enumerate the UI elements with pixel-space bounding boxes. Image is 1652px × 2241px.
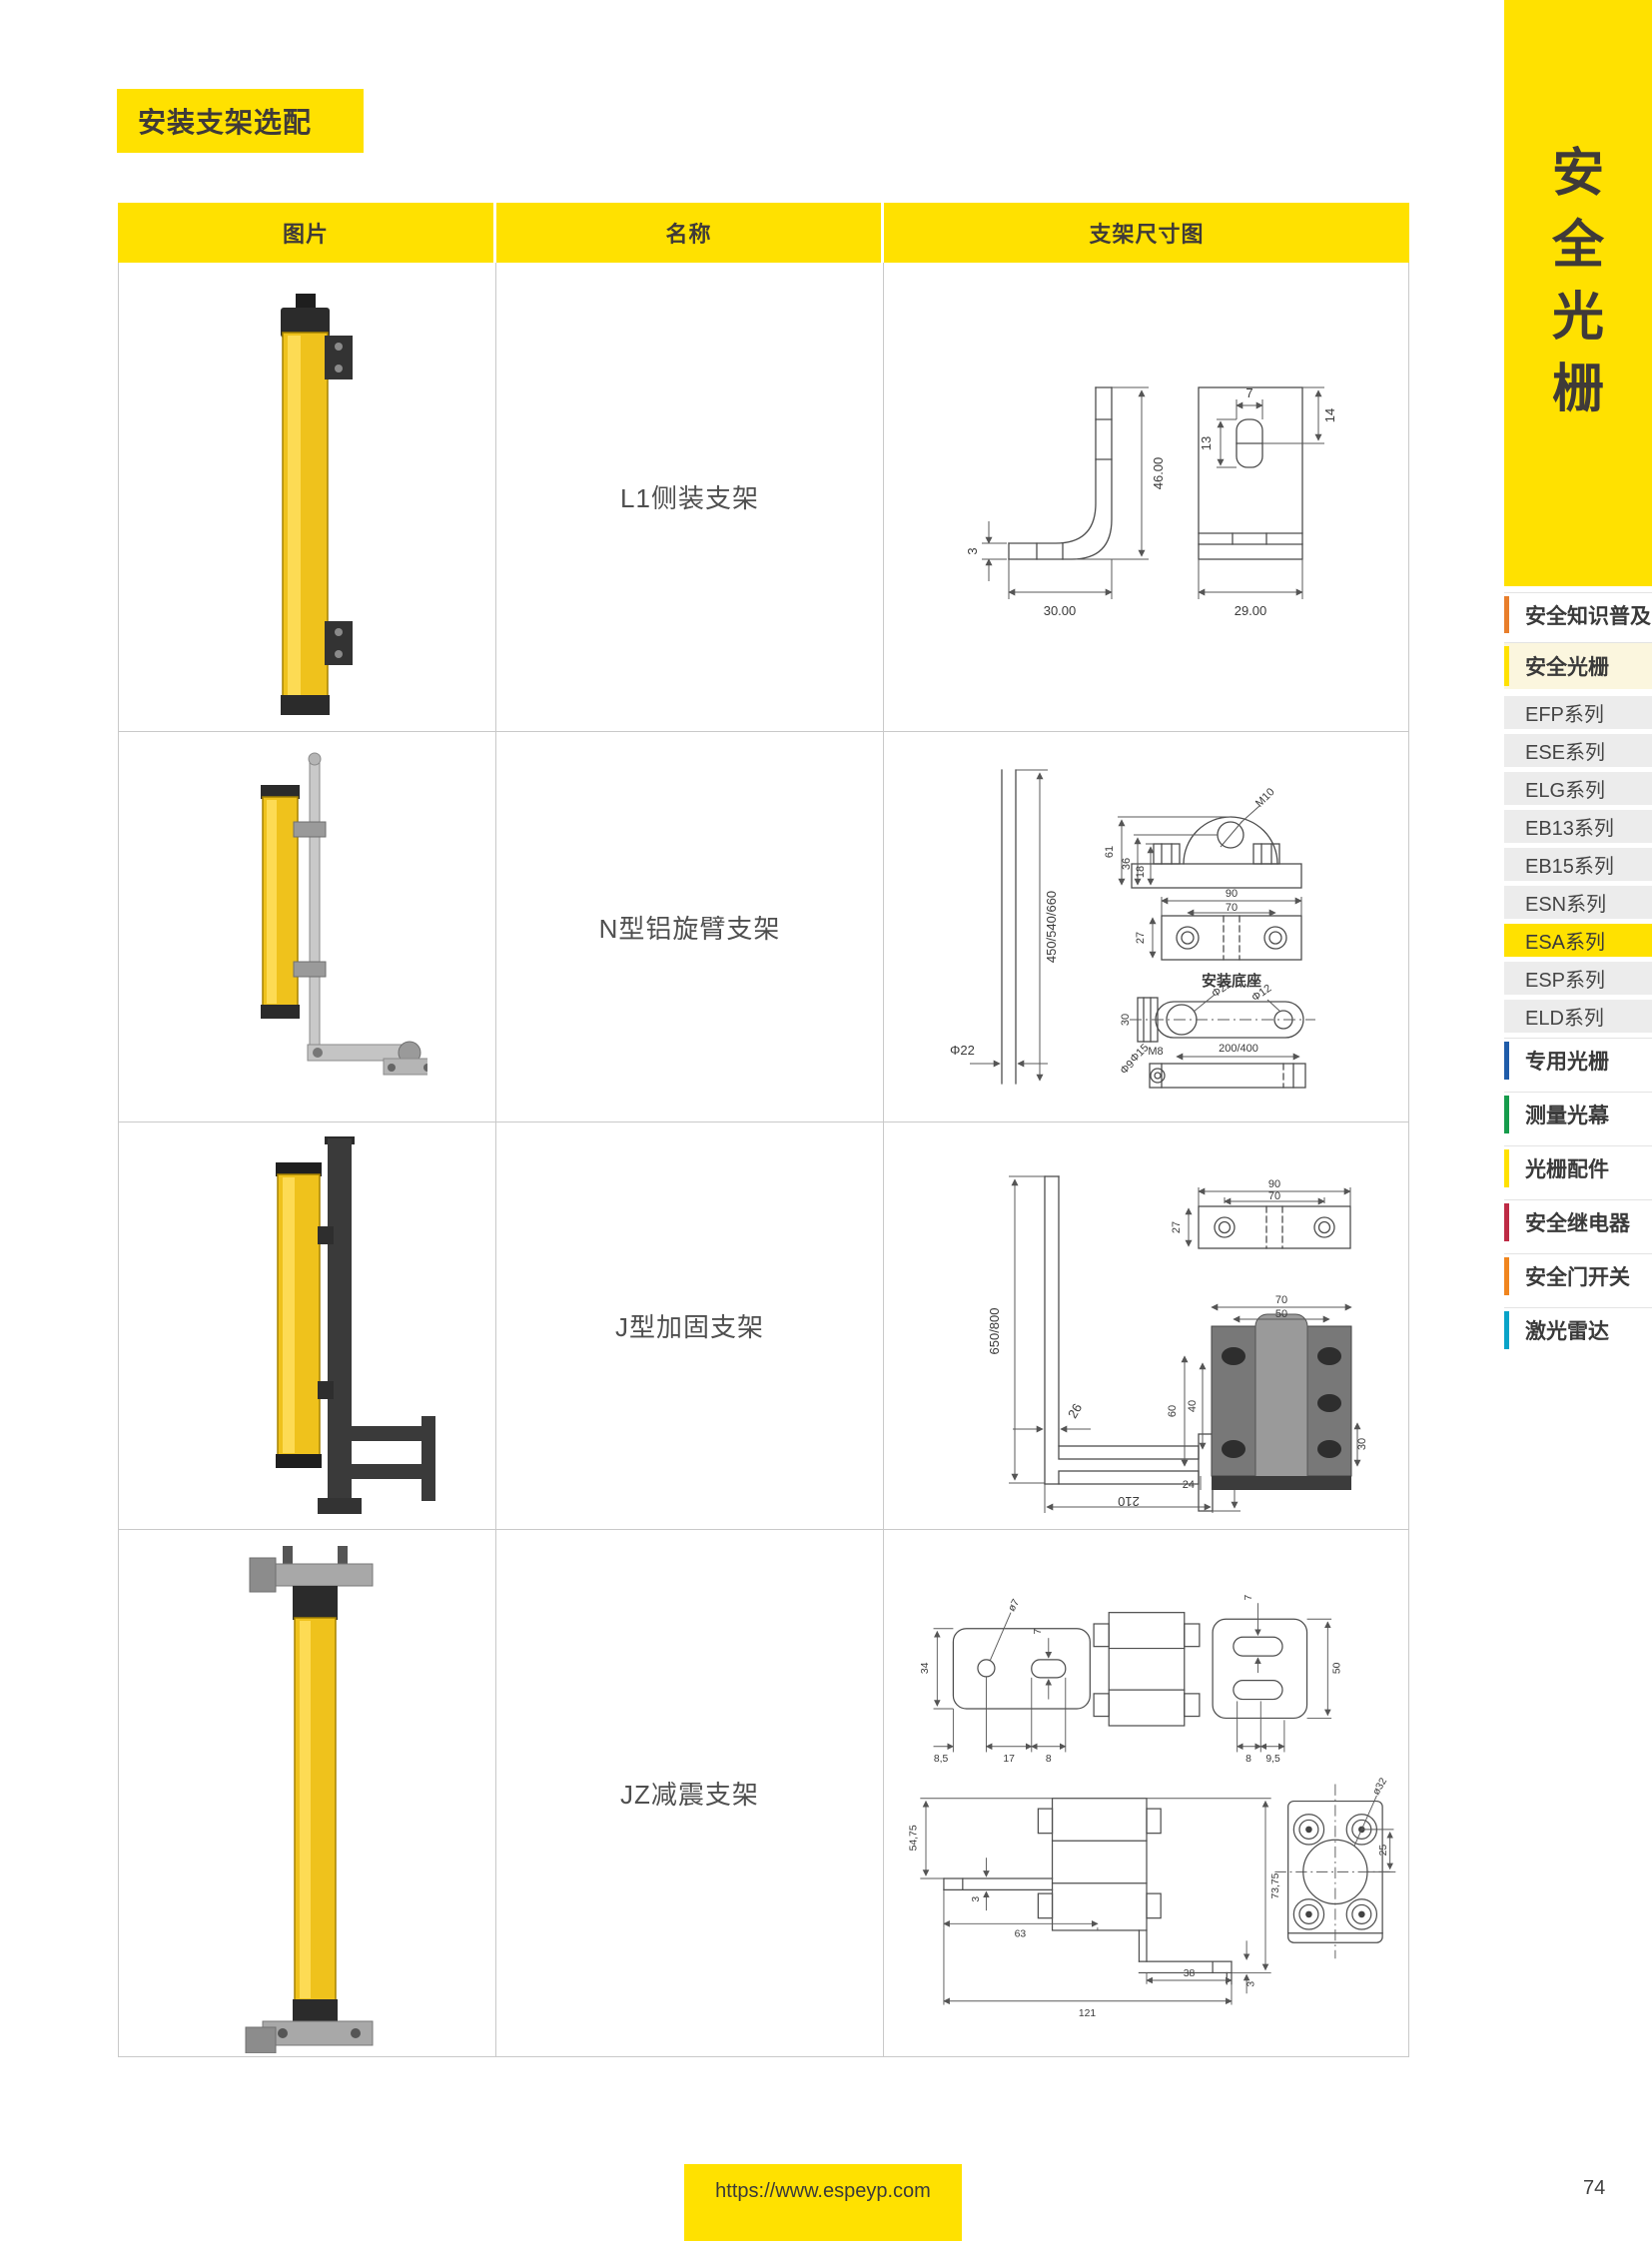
swivel-arm xyxy=(308,1042,427,1075)
sidebar-item-special-light-curtain[interactable]: 专用光栅 xyxy=(1504,1038,1652,1083)
dim-label: 70 xyxy=(1267,1190,1279,1202)
dim-label: 30.00 xyxy=(1043,603,1076,618)
dim-label: 14 xyxy=(1322,407,1337,421)
side-mount-bracket-bottom xyxy=(325,621,353,665)
photo-cell-j-type xyxy=(118,1122,496,1530)
dim-label: 46.00 xyxy=(1151,456,1166,489)
dim-label: 50 xyxy=(1274,1308,1286,1320)
dim-label: 40 xyxy=(1187,1399,1199,1411)
sidebar-item-label: EB15系列 xyxy=(1525,850,1614,879)
page-number: 74 xyxy=(1583,2177,1605,2200)
dim-label: 24 xyxy=(1182,1479,1194,1491)
bracket-table: 图片 名称 支架尺寸图 L1侧装支架 xyxy=(118,203,1409,2057)
dimension-diagram-l1: 46.00 30.00 3 xyxy=(937,348,1356,647)
dim-label: 3 xyxy=(1245,1980,1256,1986)
title-char: 光 xyxy=(1552,292,1604,344)
sidebar-item-safety-relay[interactable]: 安全继电器 xyxy=(1504,1199,1652,1244)
sidebar-item-label: 测量光幕 xyxy=(1525,1100,1609,1129)
sidebar-item-label: ESN系列 xyxy=(1525,888,1606,917)
dim-label: 7 xyxy=(1033,1628,1044,1634)
l1-side-view: 46.00 30.00 3 xyxy=(965,387,1166,618)
dim-label: M10 xyxy=(1253,786,1277,810)
diagram-cell-j-type: 650/800 26 148 210 xyxy=(884,1122,1409,1530)
title-char: 栅 xyxy=(1552,364,1604,415)
dim-label: 30 xyxy=(1356,1437,1366,1449)
sidebar-item-laser-radar[interactable]: 激光雷达 xyxy=(1504,1307,1652,1352)
jz-side-view: 54,75 3 63 38 121 xyxy=(908,1798,1281,2018)
sidebar-item-safety-door-switch[interactable]: 安全门开关 xyxy=(1504,1253,1652,1298)
dim-label: 7 xyxy=(1245,385,1252,400)
sidebar-item-esa-series-active[interactable]: ESA系列 xyxy=(1504,924,1652,957)
sidebar-item-label: 安全光栅 xyxy=(1525,651,1609,681)
sidebar-nav: 安全知识普及 安全光栅 EFP系列 ESE系列 ELG系列 EB13系列 EB1… xyxy=(1504,592,1652,1352)
diagram-cell-l1: 46.00 30.00 3 xyxy=(884,263,1409,732)
sidebar-item-efp-series[interactable]: EFP系列 xyxy=(1504,696,1652,729)
sidebar-item-grating-accessories[interactable]: 光栅配件 xyxy=(1504,1145,1652,1190)
sidebar-item-esn-series[interactable]: ESN系列 xyxy=(1504,886,1652,919)
color-bar xyxy=(1504,596,1509,633)
sidebar-item-label: 安全继电器 xyxy=(1525,1207,1630,1237)
sidebar-item-safety-light-curtain[interactable]: 安全光栅 xyxy=(1504,642,1652,689)
right-sidebar: 安 全 光 栅 安全知识普及 安全光栅 EFP系列 ESE系列 ELG系列 xyxy=(1504,0,1652,2241)
color-bar xyxy=(1504,1257,1509,1295)
dim-label: 27 xyxy=(1171,1220,1183,1232)
dim-label: 27 xyxy=(1135,932,1147,944)
column-header-image: 图片 xyxy=(118,203,496,263)
dim-label: ø7 xyxy=(1006,1597,1022,1613)
name-cell-jz: JZ减震支架 xyxy=(496,1530,884,2057)
dim-label: 17 xyxy=(1003,1753,1015,1764)
dim-label: 8,5 xyxy=(933,1753,948,1764)
dim-label: 7 xyxy=(1242,1594,1253,1600)
j-clamp-view: 70 50 60 40 30 24 xyxy=(1167,1294,1366,1491)
product-photo-n-type-bracket xyxy=(188,747,427,1107)
name-cell-j-type: J型加固支架 xyxy=(496,1122,884,1530)
sidebar-item-label: EFP系列 xyxy=(1525,698,1604,727)
n-rod-view: 450/540/660 Φ22 xyxy=(950,770,1059,1084)
sidebar-item-eld-series[interactable]: ELD系列 xyxy=(1504,1000,1652,1033)
sidebar-item-label: 激光雷达 xyxy=(1525,1315,1609,1345)
dim-label: 8 xyxy=(1245,1753,1251,1764)
footer-url-pill[interactable]: https://www.espeyp.com xyxy=(684,2164,962,2241)
dim-label: 18 xyxy=(1135,866,1147,878)
dim-label: 73,75 xyxy=(1270,1872,1281,1898)
catalog-page: 安装支架选配 图片 名称 支架尺寸图 xyxy=(0,0,1652,2241)
title-char: 全 xyxy=(1552,220,1604,272)
sidebar-item-label: 光栅配件 xyxy=(1525,1153,1609,1183)
footer-url-text[interactable]: https://www.espeyp.com xyxy=(715,2180,931,2203)
sidebar-item-label: EB13系列 xyxy=(1525,812,1614,841)
sidebar-item-safety-knowledge[interactable]: 安全知识普及 xyxy=(1504,592,1652,636)
dim-label: 50 xyxy=(1331,1662,1342,1674)
sidebar-item-elg-series[interactable]: ELG系列 xyxy=(1504,772,1652,805)
j-plate-view: 90 70 27 xyxy=(1171,1178,1350,1248)
dimension-diagram-jz: ø7 7 34 xyxy=(892,1544,1401,2043)
diagram-cell-n-type: 450/540/660 Φ22 M10 xyxy=(884,732,1409,1122)
product-photo-j-type-bracket xyxy=(178,1126,437,1526)
dim-label: 3 xyxy=(965,547,980,554)
dim-label: 26 xyxy=(1064,1400,1084,1420)
dim-label: 90 xyxy=(1267,1178,1279,1190)
dim-label: 200/400 xyxy=(1219,1043,1258,1055)
dim-label: 61 xyxy=(1104,846,1116,858)
column-header-name: 名称 xyxy=(496,203,884,263)
sidebar-vertical-title: 安 全 光 栅 xyxy=(1504,0,1652,586)
dim-label: 54,75 xyxy=(908,1825,919,1851)
dim-label: 450/540/660 xyxy=(1044,891,1059,963)
photo-cell-jz xyxy=(118,1530,496,2057)
sidebar-item-esp-series[interactable]: ESP系列 xyxy=(1504,962,1652,995)
dim-label: 70 xyxy=(1274,1294,1286,1306)
n-arch-bracket-view: M10 61 36 18 xyxy=(1104,786,1301,888)
n-long-bar-view: 200/400 Φ15 Φ9 xyxy=(1118,1042,1305,1088)
dim-label: 13 xyxy=(1199,435,1214,449)
product-photo-l1-bracket xyxy=(188,278,427,717)
jz-face-view: ø32 25 xyxy=(1274,1776,1395,1958)
dim-label: ø32 xyxy=(1370,1776,1389,1797)
dim-label: 210 xyxy=(1118,1494,1140,1509)
dim-label: 70 xyxy=(1225,902,1237,914)
sidebar-item-label: ESE系列 xyxy=(1525,736,1605,765)
sidebar-item-label: 专用光栅 xyxy=(1525,1046,1609,1076)
dim-label: 38 xyxy=(1183,1968,1195,1979)
dim-label: 30 xyxy=(1120,1014,1132,1026)
bracket-name: JZ减震支架 xyxy=(620,1775,759,1812)
dim-label: 36 xyxy=(1121,858,1133,870)
photo-cell-l1 xyxy=(118,263,496,732)
name-cell-l1: L1侧装支架 xyxy=(496,263,884,732)
dim-label: 3 xyxy=(970,1895,981,1901)
color-bar xyxy=(1504,1311,1509,1349)
color-bar xyxy=(1504,646,1509,686)
bracket-name: L1侧装支架 xyxy=(620,478,759,515)
sidebar-item-label: ESA系列 xyxy=(1525,926,1605,955)
dim-label: 9,5 xyxy=(1265,1753,1280,1764)
column-header-label: 图片 xyxy=(283,217,329,249)
sidebar-item-label: ELD系列 xyxy=(1525,1002,1604,1031)
name-cell-n-type: N型铝旋臂支架 xyxy=(496,732,884,1122)
dim-label: 90 xyxy=(1225,888,1237,900)
photo-cell-n-type xyxy=(118,732,496,1122)
sidebar-item-label: ELG系列 xyxy=(1525,774,1605,803)
sidebar-item-eb15-series[interactable]: EB15系列 xyxy=(1504,848,1652,881)
n-base-plate-view: 90 70 27 安装底座 xyxy=(1135,888,1301,990)
l1-front-view: 7 13 14 29.00 xyxy=(1199,385,1337,618)
color-bar xyxy=(1504,1203,1509,1241)
dim-label: 25 xyxy=(1377,1844,1388,1856)
sidebar-item-eb13-series[interactable]: EB13系列 xyxy=(1504,810,1652,843)
sidebar-item-label: 安全知识普及 xyxy=(1525,600,1651,630)
dim-label: 121 xyxy=(1078,2007,1096,2018)
dim-label: Φ22 xyxy=(950,1043,975,1058)
bracket-name: J型加固支架 xyxy=(615,1307,764,1344)
jz-bottom-bracket xyxy=(246,2021,373,2053)
sidebar-item-label: 安全门开关 xyxy=(1525,1261,1630,1291)
sidebar-item-measuring-light-curtain[interactable]: 测量光幕 xyxy=(1504,1092,1652,1136)
color-bar xyxy=(1504,1042,1509,1080)
jz-top-view: ø7 7 34 xyxy=(919,1594,1342,1764)
side-mount-bracket-top xyxy=(325,336,353,379)
dim-label: 60 xyxy=(1167,1404,1179,1416)
dim-label: 29.00 xyxy=(1234,603,1266,618)
dim-label: 34 xyxy=(919,1662,930,1674)
sidebar-item-label: ESP系列 xyxy=(1525,964,1605,993)
color-bar xyxy=(1504,1149,1509,1187)
dim-label: M8 xyxy=(1148,1046,1163,1058)
dimension-diagram-j-type: 650/800 26 148 210 xyxy=(927,1131,1366,1521)
page-title-text: 安装支架选配 xyxy=(138,101,312,141)
product-photo-jz-bracket xyxy=(188,1534,427,2053)
page-title: 安装支架选配 xyxy=(117,89,364,153)
dim-label: 8 xyxy=(1045,1753,1051,1764)
sidebar-item-ese-series[interactable]: ESE系列 xyxy=(1504,734,1652,767)
column-header-dimension: 支架尺寸图 xyxy=(884,203,1409,263)
column-header-label: 支架尺寸图 xyxy=(1089,217,1204,249)
column-header-label: 名称 xyxy=(665,217,711,249)
color-bar xyxy=(1504,1096,1509,1133)
n-arm-view: Φ22 Φ12 M8 30 xyxy=(1120,979,1315,1058)
jz-top-bracket xyxy=(250,1546,373,1592)
dim-label: 63 xyxy=(1014,1928,1026,1939)
diagram-cell-jz: ø7 7 34 xyxy=(884,1530,1409,2057)
bracket-name: N型铝旋臂支架 xyxy=(599,909,781,946)
dimension-diagram-n-type: 450/540/660 Φ22 M10 xyxy=(932,752,1361,1102)
title-char: 安 xyxy=(1552,148,1604,200)
dim-label: 650/800 xyxy=(987,1307,1002,1354)
